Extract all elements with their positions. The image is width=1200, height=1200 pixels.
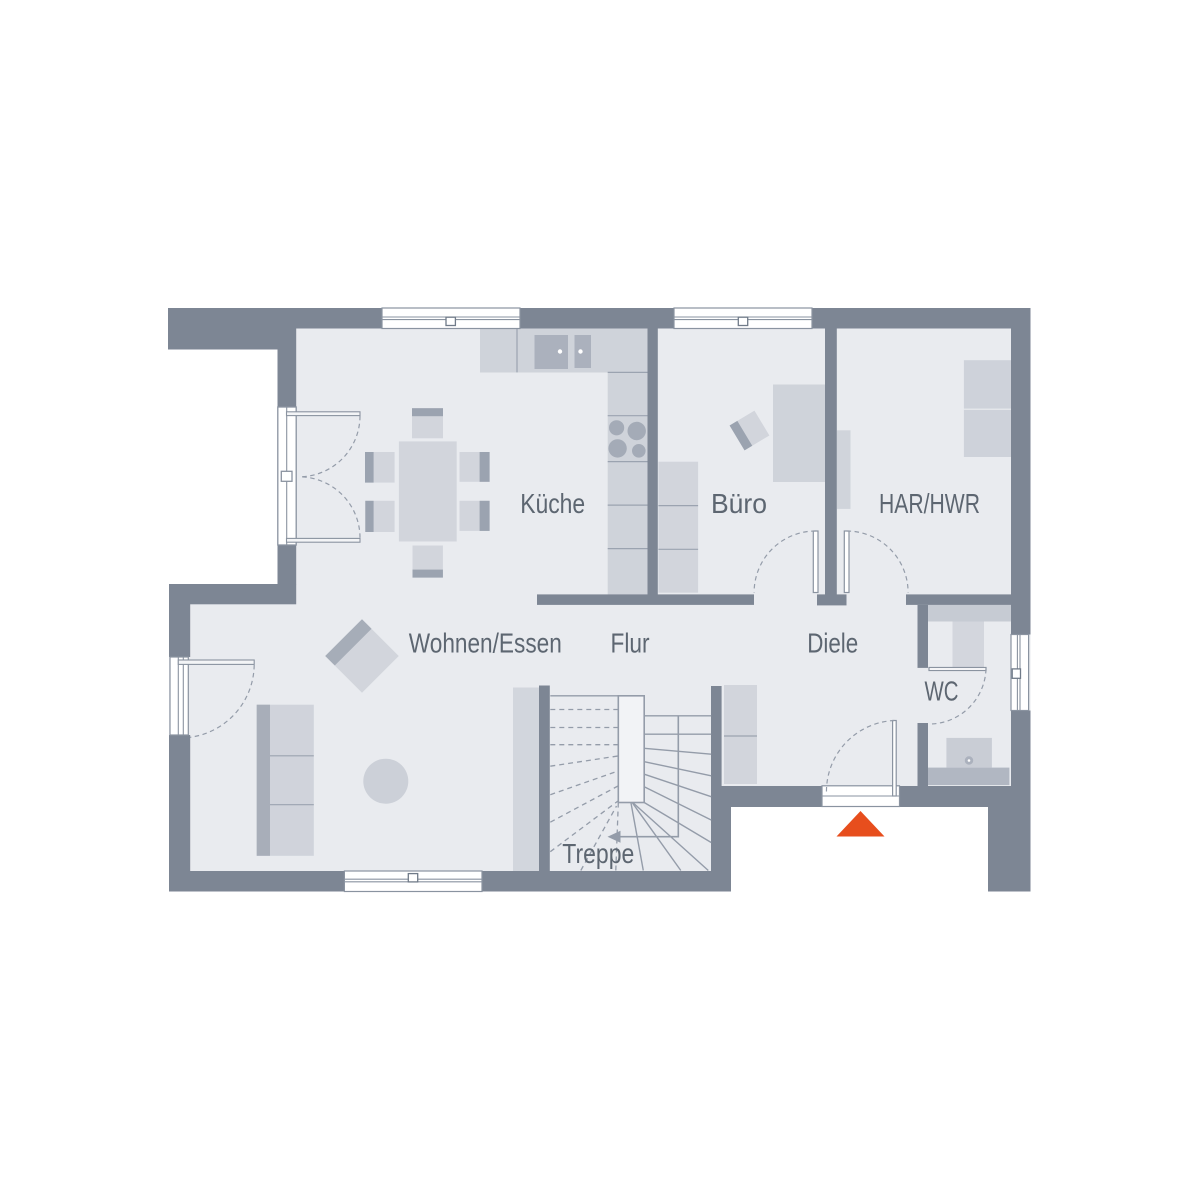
svg-text:Küche: Küche <box>520 488 585 519</box>
svg-text:WC: WC <box>925 676 959 707</box>
svg-text:Diele: Diele <box>807 628 858 659</box>
svg-text:Flur: Flur <box>611 628 650 659</box>
svg-text:Wohnen/Essen: Wohnen/Essen <box>409 628 562 659</box>
svg-text:HAR/HWR: HAR/HWR <box>879 488 980 519</box>
svg-text:Büro: Büro <box>711 488 767 519</box>
svg-text:Treppe: Treppe <box>562 838 634 869</box>
